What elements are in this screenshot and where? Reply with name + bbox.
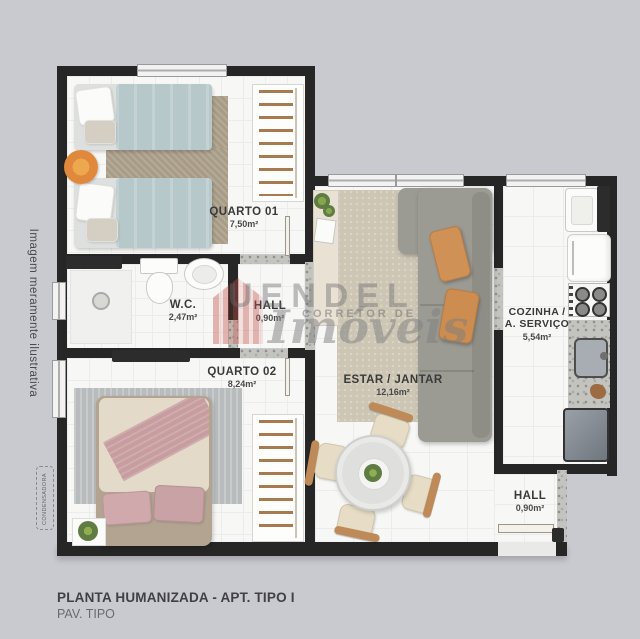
stove (568, 283, 610, 317)
burner-2 (592, 287, 607, 302)
quarto2-closet-hangers (259, 420, 293, 536)
bed-double (96, 396, 212, 546)
dining-table (335, 435, 411, 511)
laundry-tank (565, 188, 599, 232)
quarto1-window (137, 64, 227, 77)
quarto2-window (52, 360, 66, 418)
threshold-quarto2-door (240, 349, 288, 358)
bed1-pillow-small (84, 120, 116, 144)
fridge (567, 234, 611, 282)
quarto2-closet (252, 414, 304, 542)
wall-quarto2-hall-stub (288, 348, 306, 358)
wall-quarto1-hall-stub (290, 254, 306, 264)
burner-1 (575, 287, 590, 302)
threshold-kitchen-opening (494, 268, 503, 330)
sofa-seam-2 (420, 370, 474, 372)
hall1-floor (238, 264, 305, 348)
plant-icon-quarto2 (78, 521, 98, 541)
double-bed-throw (103, 398, 209, 481)
plant-icon-centerpiece (364, 464, 382, 482)
wall-divider-living-kitchen-top (494, 176, 503, 268)
wc-sink-basin (192, 265, 217, 284)
bed2-duvet (116, 178, 212, 248)
quarto1-closet-hangers (259, 90, 293, 196)
quarto1-round-rug (64, 150, 98, 184)
quarto2-tv-panel (112, 350, 190, 362)
quarto2-closet-rod (295, 418, 297, 538)
washing-machine (563, 408, 609, 462)
laundry-tank-basin (571, 196, 593, 225)
burner-3 (575, 302, 590, 317)
entry-door-gap (498, 542, 556, 556)
wc-window (52, 282, 66, 320)
footer-title: PLANTA HUMANIZADA - APT. TIPO I (57, 590, 295, 605)
wall-divider-living-kitchen-bottom (494, 330, 503, 472)
kitchen-shaft (597, 186, 610, 232)
fridge-handle (572, 241, 574, 275)
burner-4 (592, 302, 607, 317)
footer-subtitle: PAV. TIPO (57, 607, 115, 621)
bed-single-2 (74, 178, 212, 248)
kitchen-counter (568, 320, 610, 408)
double-bed-duvet (99, 398, 209, 492)
kitchen-faucet (600, 352, 608, 360)
wc-sink-icon (184, 258, 224, 290)
living-window-left (328, 174, 396, 187)
wall-wc-hall (228, 264, 238, 320)
quarto1-door-leaf (285, 216, 290, 256)
laptop-icon (313, 218, 336, 245)
double-bed-pillow-1 (102, 490, 152, 525)
bed1-duvet (116, 84, 212, 150)
toilet-bowl (146, 272, 173, 304)
threshold-quarto1-door (240, 255, 290, 264)
entry-door-leaf (498, 524, 554, 533)
double-bed-pillow-2 (153, 485, 205, 524)
cutting-board (590, 384, 606, 399)
stove-knobs (569, 286, 573, 316)
condenser-label: CONDENSADORA (42, 473, 48, 525)
condenser-box: CONDENSADORA (36, 466, 54, 530)
threshold-wc-door (228, 320, 238, 348)
quarto2-door-leaf (285, 358, 290, 396)
bed-single-1 (74, 84, 212, 150)
living-window-right (396, 174, 464, 187)
plant-icon-sideboard-2 (323, 205, 335, 217)
entry-door-hinge (552, 528, 564, 542)
wc-vanity-shelf (66, 256, 122, 269)
bed2-pillow-small (86, 218, 118, 242)
kitchen-window (506, 174, 586, 187)
wall-kitchen-bottom (494, 464, 617, 474)
side-note: Imagem meramente ilustrativa (27, 229, 39, 398)
showerhead-icon (92, 292, 110, 310)
quarto1-closet (252, 84, 304, 202)
floor-plan-canvas: QUARTO 01 7,50m² W.C. 2,47m² HALL 0,90m²… (0, 0, 640, 639)
quarto1-closet-rod (295, 88, 297, 198)
